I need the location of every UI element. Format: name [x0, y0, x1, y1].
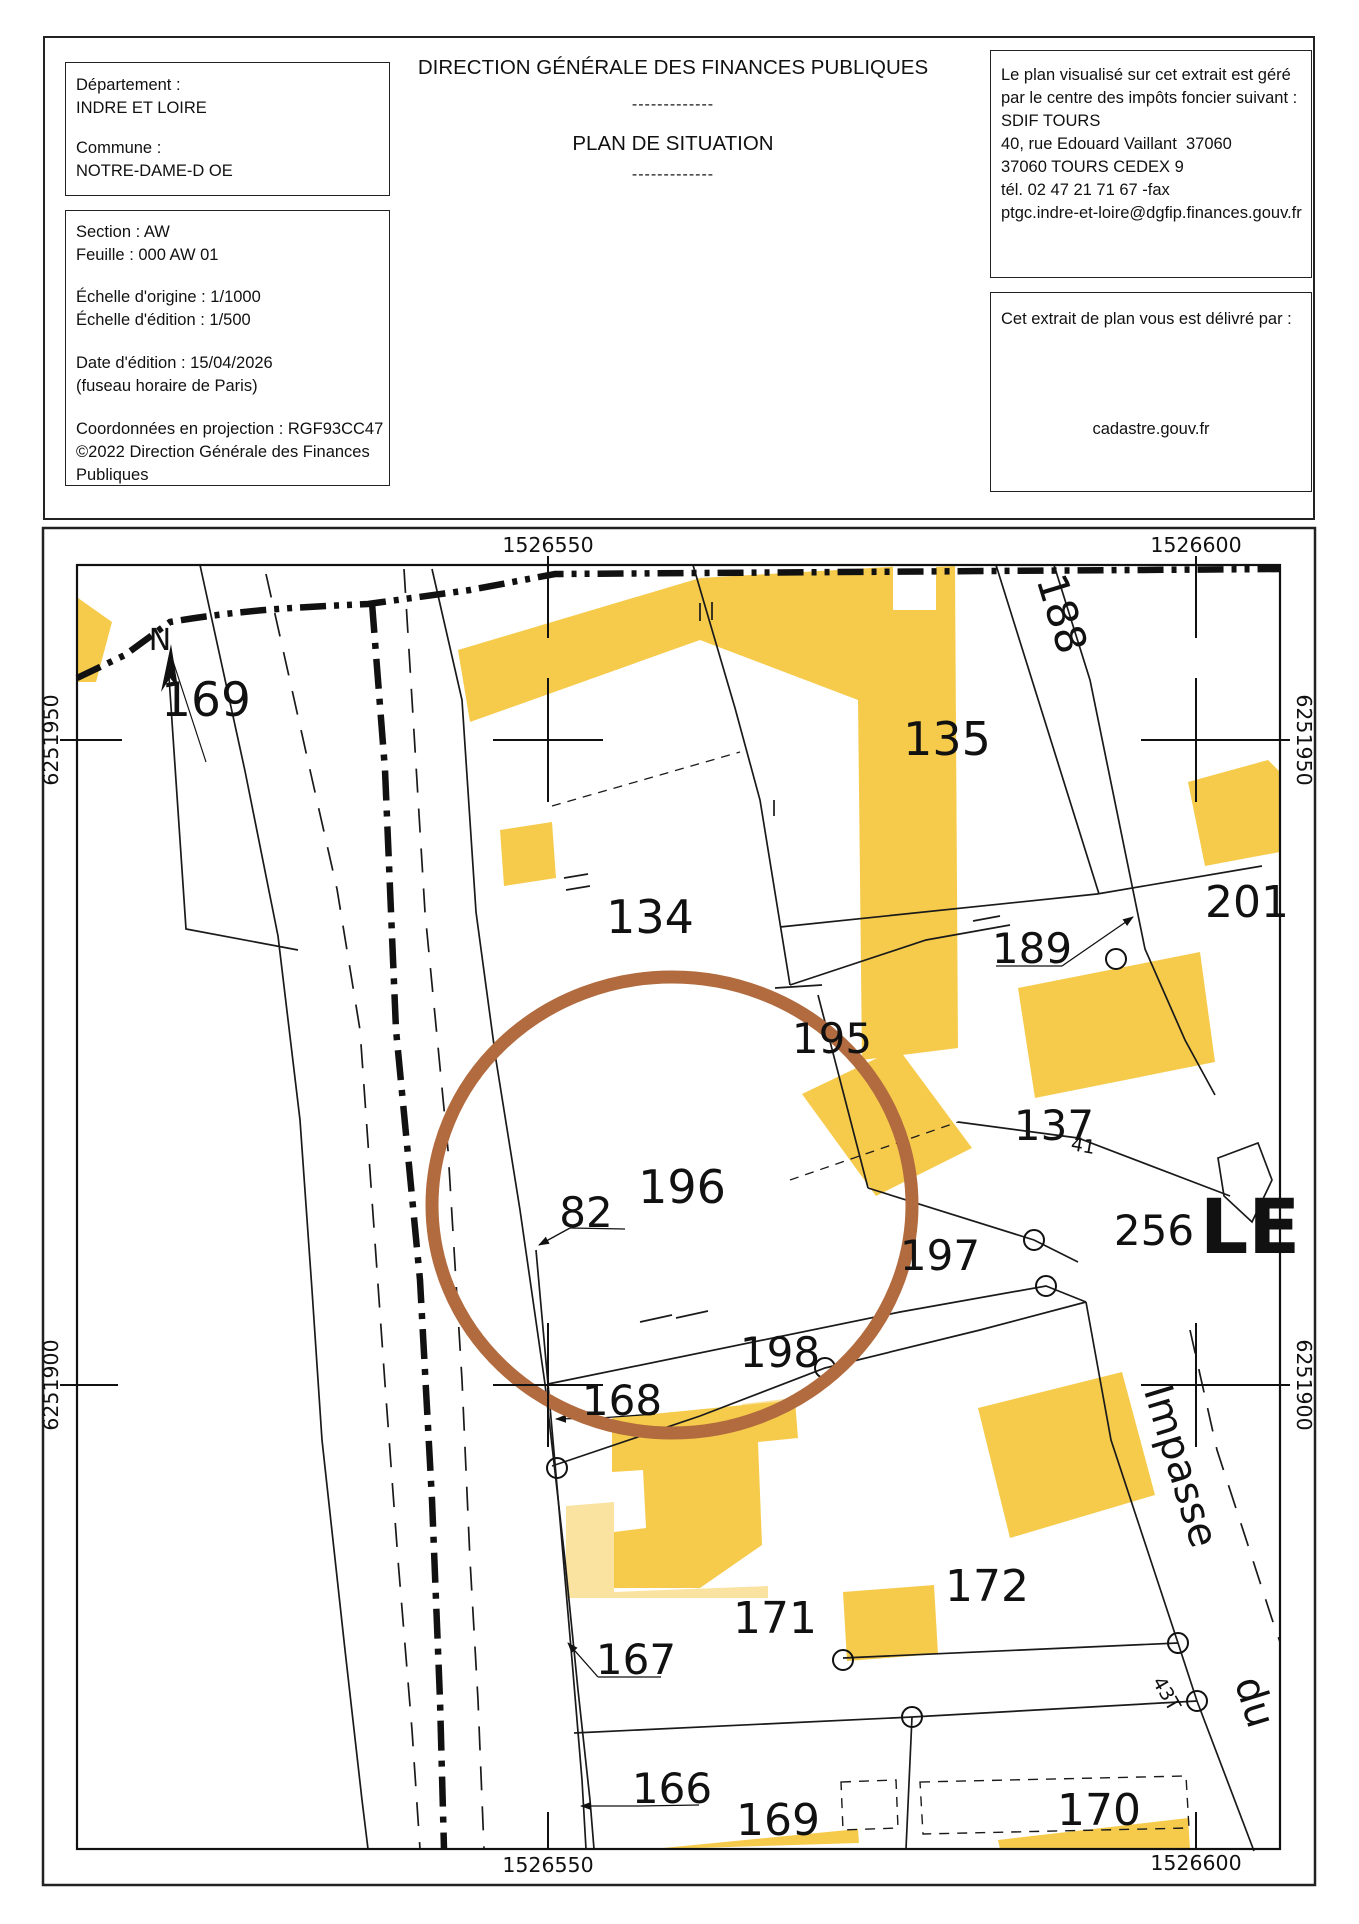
parcel-label-167: 167 — [596, 1635, 676, 1684]
parcel-label-169: 169 — [161, 673, 251, 728]
parcel-label-169: 169 — [736, 1795, 820, 1846]
parcel-label-135: 135 — [903, 712, 991, 766]
parcel-label-256: 256 — [1114, 1206, 1194, 1255]
parcel-label-188: 188 — [1027, 568, 1097, 659]
parcel-label-189: 189 — [992, 924, 1072, 973]
parcel-label-197: 197 — [900, 1231, 980, 1280]
grid-coordinate-label: 1526550 — [502, 1853, 593, 1877]
cadastral-plan-page: Département : INDRE ET LOIRE Commune : N… — [0, 0, 1359, 1924]
parcel-label-198: 198 — [740, 1328, 820, 1377]
grid-coordinate-label: 1526550 — [502, 533, 593, 557]
parcel-label-201: 201 — [1205, 877, 1289, 928]
parcel-label-82: 82 — [559, 1188, 612, 1237]
grid-coordinate-label: 6251950 — [39, 694, 63, 785]
parcel-label-n: N — [149, 623, 171, 658]
grid-coordinate-label: 6251900 — [39, 1339, 63, 1430]
parcel-label-196: 196 — [638, 1160, 726, 1214]
grid-coordinate-label: 6251900 — [1292, 1339, 1316, 1430]
parcel-label-172: 172 — [945, 1561, 1029, 1612]
grid-coordinate-label: 1526600 — [1150, 533, 1241, 557]
parcel-number-labels: N1691881351342011891951374182196256LE197… — [149, 568, 1300, 1846]
parcel-label-168: 168 — [582, 1376, 662, 1425]
parcel-label-171: 171 — [733, 1593, 817, 1644]
parcel-label-impasse: Impasse — [1134, 1380, 1227, 1553]
parcel-label-195: 195 — [792, 1014, 872, 1063]
parcel-label-41: 41 — [1069, 1133, 1097, 1159]
grid-coordinate-label: 1526600 — [1150, 1851, 1241, 1875]
parcel-label-134: 134 — [606, 890, 694, 944]
parcel-label-170: 170 — [1057, 1785, 1141, 1836]
parcel-label-166: 166 — [632, 1764, 712, 1813]
parcel-label-le: LE — [1200, 1182, 1300, 1271]
cadastral-map: 1526550152660015265501526600625195062519… — [0, 0, 1359, 1924]
parcel-label-du: du — [1225, 1671, 1284, 1733]
grid-coordinate-label: 6251950 — [1292, 694, 1316, 785]
parcel-label-43t: 43T — [1148, 1673, 1185, 1715]
